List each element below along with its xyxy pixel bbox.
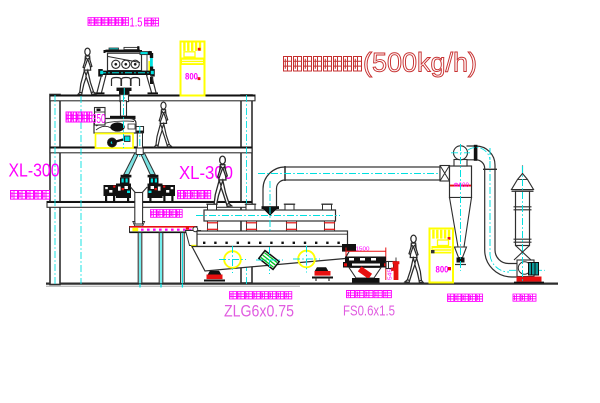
svg-text:800: 800 — [185, 72, 198, 82]
svg-text:1500: 1500 — [356, 247, 370, 253]
svg-text:800: 800 — [436, 265, 449, 275]
svg-text:(500kg/h): (500kg/h) — [363, 48, 477, 78]
svg-text:FS0.6x1.5: FS0.6x1.5 — [343, 303, 395, 320]
svg-text:XL-300: XL-300 — [9, 160, 60, 181]
svg-text:350: 350 — [92, 111, 106, 126]
svg-text:ZLG6x0.75: ZLG6x0.75 — [224, 303, 294, 321]
svg-text:Φ600: Φ600 — [454, 182, 470, 189]
svg-text:1.5: 1.5 — [130, 15, 143, 30]
